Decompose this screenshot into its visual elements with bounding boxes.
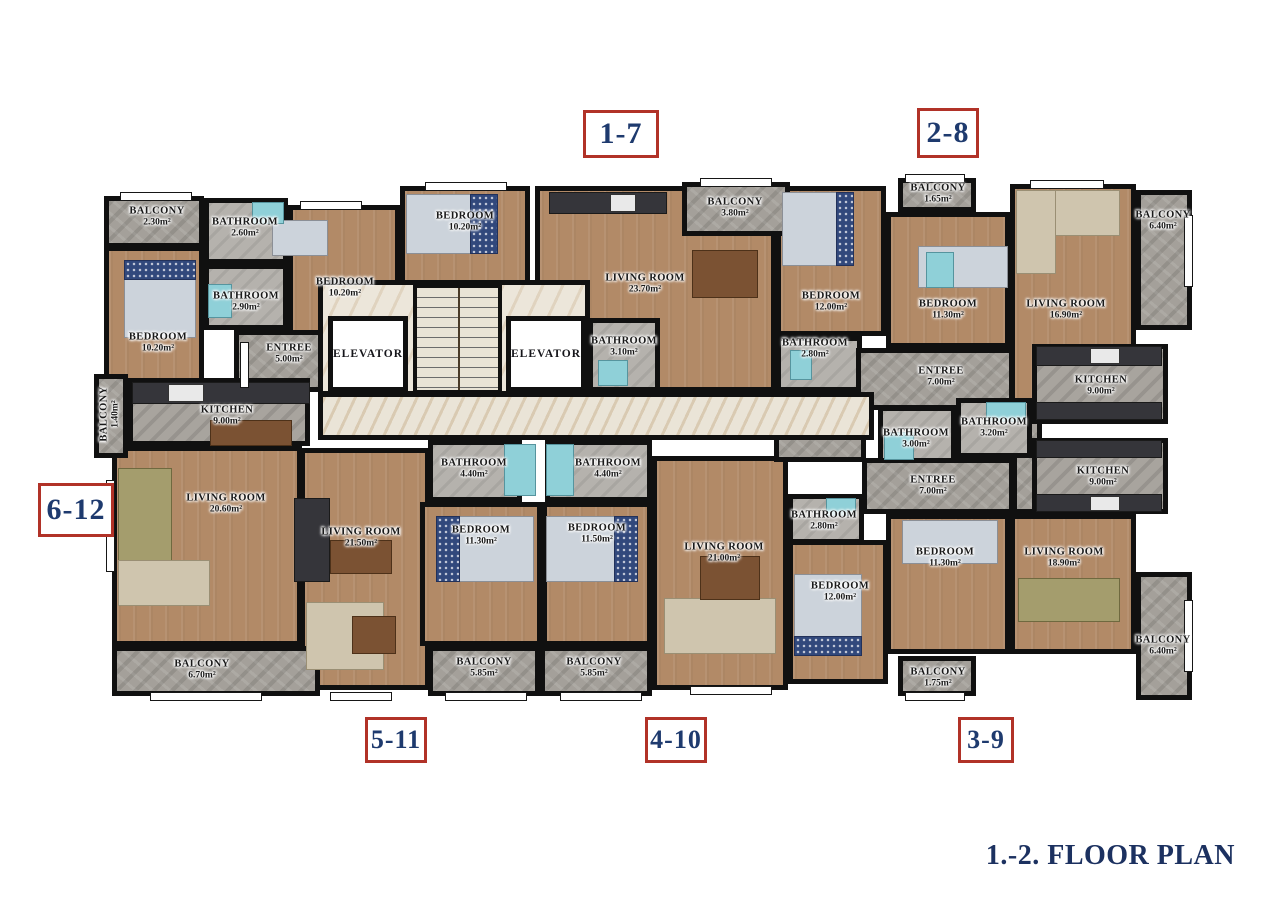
bath-fixture-graphic [546, 444, 574, 496]
room-name: BATHROOM [213, 291, 279, 303]
room-area: 12.00m² [811, 593, 869, 604]
room-area: 16.90m² [1026, 311, 1105, 322]
room-label-bathroom: BATHROOM4.40m² [575, 458, 641, 481]
room-area: 11.50m² [568, 535, 626, 546]
room-label-living-room: LIVING ROOM20.60m² [186, 493, 265, 516]
room-name: LIVING ROOM [321, 527, 400, 539]
room-label-balcony: BALCONY2.30m² [129, 206, 184, 229]
unit-label-2-8: 2-8 [917, 108, 979, 158]
room-name: KITCHEN [1077, 466, 1129, 478]
unit-label-4-10: 4-10 [645, 717, 707, 763]
room-area: 3.20m² [961, 429, 1027, 440]
window-graphic [905, 692, 965, 701]
bath-fixture-graphic [504, 444, 536, 496]
room-label-bathroom: BATHROOM4.40m² [441, 458, 507, 481]
room-label-bedroom: BEDROOM11.30m² [916, 547, 974, 570]
room-label-balcony: BALCONY1.40m² [99, 386, 122, 441]
room-name: BATHROOM [575, 458, 641, 470]
room-label-balcony: BALCONY1.65m² [910, 183, 965, 206]
unit-label-3-9: 3-9 [958, 717, 1014, 763]
room-name: BEDROOM [802, 291, 860, 303]
room-area: 10.20m² [316, 289, 374, 300]
room-area: 2.60m² [212, 229, 278, 240]
room-name: BATHROOM [961, 417, 1027, 429]
sofa-graphic [1018, 578, 1120, 622]
room-name: ENTREE [918, 366, 964, 378]
room-label-kitchen: KITCHEN9.00m² [1075, 375, 1127, 398]
room-name: KITCHEN [1075, 375, 1127, 387]
room-area: 2.30m² [129, 218, 184, 229]
room-label-living-room: LIVING ROOM18.90m² [1024, 547, 1103, 570]
room-area: 2.80m² [791, 522, 857, 533]
room-name: BATHROOM [782, 338, 848, 350]
bed-blanket-graphic [794, 636, 862, 656]
room-area: 6.70m² [174, 671, 229, 682]
room-area: 5.00m² [266, 355, 312, 366]
unit-label-5-11: 5-11 [365, 717, 427, 763]
room-area: 5.85m² [456, 669, 511, 680]
kitchen-counter-graphic [549, 192, 667, 214]
bed-blanket-graphic [836, 192, 854, 266]
room-label-balcony: BALCONY5.85m² [566, 657, 621, 680]
room-label-bathroom: BATHROOM3.20m² [961, 417, 1027, 440]
room-area: 21.00m² [684, 554, 763, 565]
room-area: 10.20m² [129, 344, 187, 355]
room-label-bedroom: BEDROOM10.20m² [129, 332, 187, 355]
room-label-bathroom: BATHROOM2.60m² [212, 217, 278, 240]
room-area: 1.75m² [910, 679, 965, 690]
window-graphic [330, 692, 392, 701]
kitchen-counter-graphic [1036, 402, 1162, 420]
room-area: 9.00m² [1077, 478, 1129, 489]
room-label-living-room: LIVING ROOM21.50m² [321, 527, 400, 550]
floor-plan: BEDROOM10.20m²BEDROOM10.20m²BEDROOM10.20… [0, 0, 1273, 900]
room-name: LIVING ROOM [1026, 299, 1105, 311]
room-label-bathroom: BATHROOM2.90m² [213, 291, 279, 314]
room-label-bathroom: BATHROOM2.80m² [782, 338, 848, 361]
room-label-balcony: BALCONY6.40m² [1135, 635, 1190, 658]
room-name: BALCONY [174, 659, 229, 671]
room-name: BATHROOM [441, 458, 507, 470]
room-label-bedroom: BEDROOM11.30m² [452, 525, 510, 548]
room-name: BEDROOM [811, 581, 869, 593]
bath-fixture-graphic [598, 360, 628, 386]
room-label-kitchen: KITCHEN9.00m² [1077, 466, 1129, 489]
unit-label-1-7: 1-7 [583, 110, 659, 158]
kitchen-counter-graphic [1036, 440, 1162, 458]
window-graphic [700, 178, 772, 187]
room-area: 4.40m² [441, 470, 507, 481]
room-area: 4.40m² [575, 470, 641, 481]
room-label-balcony: BALCONY5.85m² [456, 657, 511, 680]
window-graphic [445, 692, 527, 701]
room-name: BATHROOM [212, 217, 278, 229]
bed-blanket-graphic [124, 260, 196, 280]
bath-fixture-graphic [926, 252, 954, 288]
room-name: BATHROOM [883, 428, 949, 440]
room-label-entree: ENTREE5.00m² [266, 343, 312, 366]
room-label-bathroom: BATHROOM3.10m² [591, 336, 657, 359]
room-label-balcony: BALCONY1.75m² [910, 667, 965, 690]
window-graphic [1030, 180, 1104, 189]
room-area: 7.00m² [910, 487, 956, 498]
room-name: BEDROOM [916, 547, 974, 559]
room-label-balcony: BALCONY6.70m² [174, 659, 229, 682]
room-name: LIVING ROOM [605, 273, 684, 285]
window-graphic [300, 201, 362, 210]
room-label-entree: ENTREE7.00m² [910, 475, 956, 498]
room-label-bedroom: BEDROOM11.50m² [568, 523, 626, 546]
sofa-graphic [118, 560, 210, 606]
room-name: ENTREE [910, 475, 956, 487]
room-area: 11.30m² [919, 311, 977, 322]
room-name: BATHROOM [791, 510, 857, 522]
room-label-living-room: LIVING ROOM16.90m² [1026, 299, 1105, 322]
room-label-living-room: LIVING ROOM21.00m² [684, 542, 763, 565]
room-area: 12.00m² [802, 303, 860, 314]
sofa-graphic [1016, 190, 1056, 274]
room-area: 3.10m² [591, 348, 657, 359]
room-name: BEDROOM [568, 523, 626, 535]
room-area: 11.30m² [916, 559, 974, 570]
appliance-graphic [610, 194, 636, 212]
room-label-kitchen: KITCHEN9.00m² [201, 405, 253, 428]
room-label-bedroom: BEDROOM10.20m² [436, 211, 494, 234]
room-name: BALCONY [129, 206, 184, 218]
room-name: BEDROOM [919, 299, 977, 311]
window-graphic [690, 686, 772, 695]
staircase [413, 284, 502, 394]
room-name: KITCHEN [201, 405, 253, 417]
room-name: ENTREE [266, 343, 312, 355]
room-area: 1.65m² [910, 195, 965, 206]
window-graphic [150, 692, 262, 701]
room-label-entree: ENTREE7.00m² [918, 366, 964, 389]
room-area: 2.90m² [213, 303, 279, 314]
room-area: 21.50m² [321, 539, 400, 550]
room-area: 2.80m² [782, 350, 848, 361]
room-label-bathroom: BATHROOM2.80m² [791, 510, 857, 533]
room-area: 3.00m² [883, 440, 949, 451]
room-area: 5.85m² [566, 669, 621, 680]
room-name: BALCONY [1135, 210, 1190, 222]
room-label-bedroom: BEDROOM12.00m² [802, 291, 860, 314]
room-area: 7.00m² [918, 378, 964, 389]
room-area: 6.40m² [1135, 222, 1190, 233]
room-area: 18.90m² [1024, 559, 1103, 570]
room-name: BEDROOM [436, 211, 494, 223]
room-area: 10.20m² [436, 223, 494, 234]
kitchen-counter-graphic [132, 382, 310, 404]
room-name: BEDROOM [452, 525, 510, 537]
room-name: BALCONY [910, 667, 965, 679]
table-graphic [692, 250, 758, 298]
room-label-balcony: BALCONY6.40m² [1135, 210, 1190, 233]
room-name: BALCONY [456, 657, 511, 669]
appliance-graphic [1090, 496, 1120, 511]
room-area: 11.30m² [452, 537, 510, 548]
elevator-label: ELEVATOR [511, 348, 581, 360]
room-name: BALCONY [707, 197, 762, 209]
window-graphic [120, 192, 192, 201]
appliance-graphic [1090, 348, 1120, 364]
room-label-bathroom: BATHROOM3.00m² [883, 428, 949, 451]
room-label-bedroom: BEDROOM11.30m² [919, 299, 977, 322]
room-area: 9.00m² [1075, 387, 1127, 398]
room-name: BATHROOM [591, 336, 657, 348]
room-label-bedroom: BEDROOM10.20m² [316, 277, 374, 300]
sofa-graphic [664, 598, 776, 654]
room-name: LIVING ROOM [684, 542, 763, 554]
room-label-bedroom: BEDROOM12.00m² [811, 581, 869, 604]
room-name: LIVING ROOM [186, 493, 265, 505]
room-connector [318, 392, 874, 440]
room-area: 20.60m² [186, 505, 265, 516]
window-graphic [560, 692, 642, 701]
room-name: BEDROOM [129, 332, 187, 344]
unit-label-6-12: 6-12 [38, 483, 114, 537]
room-name: BALCONY [1135, 635, 1190, 647]
room-label-balcony: BALCONY3.80m² [707, 197, 762, 220]
room-name: BALCONY [910, 183, 965, 195]
room-label-living-room: LIVING ROOM23.70m² [605, 273, 684, 296]
room-name: BALCONY [99, 386, 111, 441]
room-area: 23.70m² [605, 285, 684, 296]
appliance-graphic [168, 384, 204, 402]
room-name: LIVING ROOM [1024, 547, 1103, 559]
room-area: 6.40m² [1135, 647, 1190, 658]
room-name: BALCONY [566, 657, 621, 669]
window-graphic [425, 182, 507, 191]
window-graphic [240, 342, 249, 388]
bed-graphic [272, 220, 328, 256]
plan-title: 1.-2. FLOOR PLAN [986, 840, 1235, 872]
elevator-label: ELEVATOR [333, 348, 403, 360]
table-graphic [352, 616, 396, 654]
room-name: BEDROOM [316, 277, 374, 289]
room-area: 9.00m² [201, 417, 253, 428]
room-area: 3.80m² [707, 209, 762, 220]
room-area: 1.40m² [111, 386, 122, 441]
